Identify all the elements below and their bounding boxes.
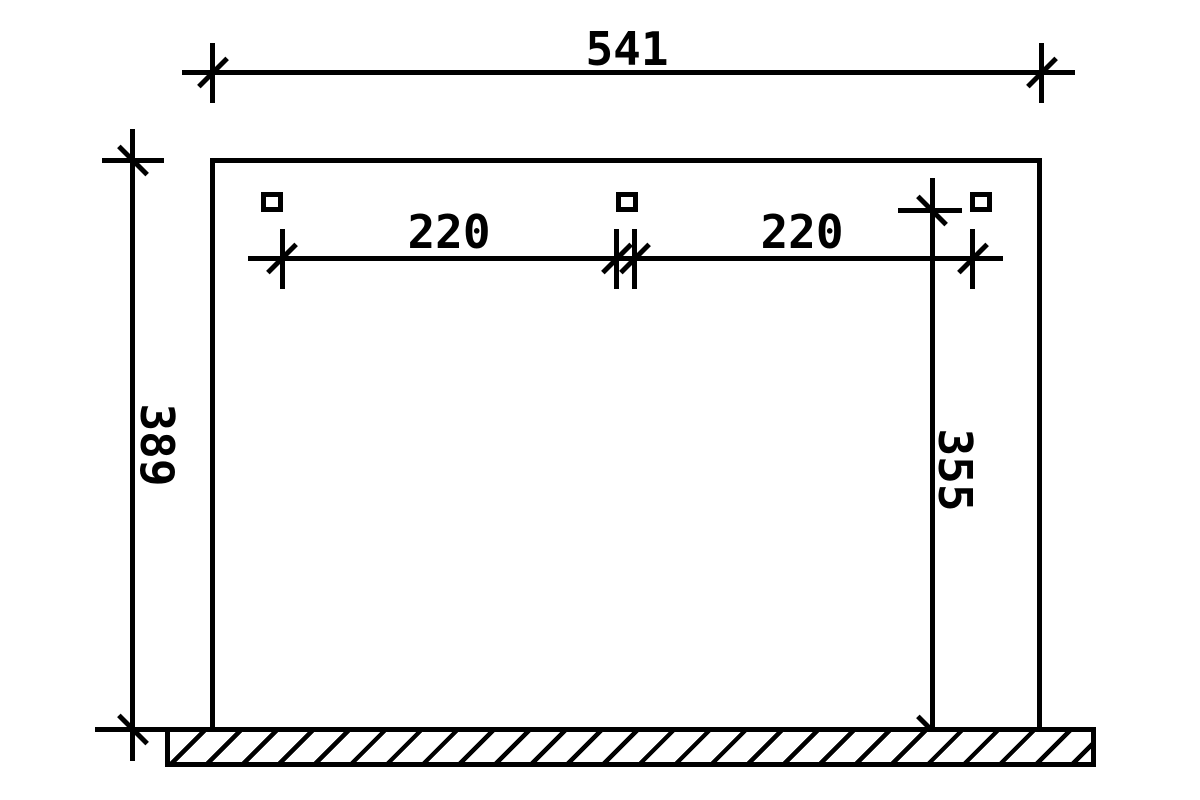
technical-drawing-canvas: 541 220 220 389 355 xyxy=(0,0,1200,800)
dim-label-bay-right: 220 xyxy=(742,209,862,255)
frame-top-beam xyxy=(210,158,1042,163)
ground-hatch-bar xyxy=(165,727,1096,767)
frame-post-left xyxy=(210,158,215,730)
post-marker-square-middle xyxy=(616,192,638,212)
frame-post-right xyxy=(1037,158,1042,730)
dim-label-height-left: 389 xyxy=(134,375,180,515)
dim-bays-line xyxy=(248,256,1003,261)
dim-label-overall-width: 541 xyxy=(567,26,687,72)
dim-label-bay-left: 220 xyxy=(389,209,509,255)
dim-label-height-right: 355 xyxy=(932,400,978,540)
post-marker-square-right xyxy=(970,192,992,212)
post-marker-square-left xyxy=(261,192,283,212)
